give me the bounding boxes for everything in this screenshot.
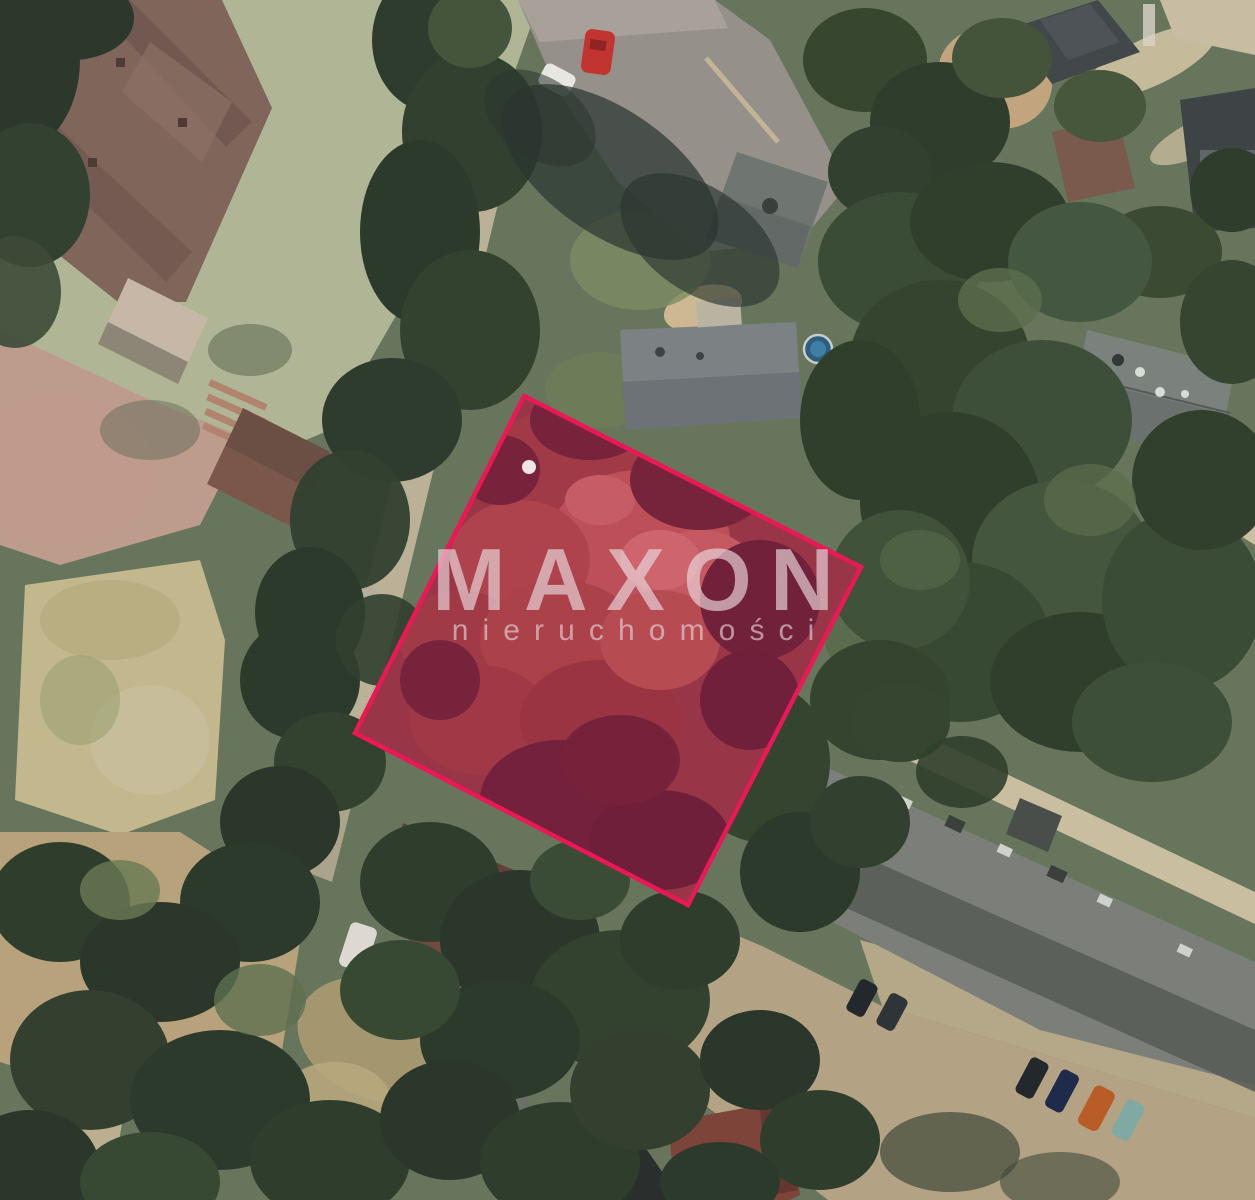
bright-spot: [522, 460, 536, 474]
listing-aerial-image: MAXON nieruchomości: [0, 0, 1255, 1200]
satellite-basemap: [0, 0, 1255, 1200]
